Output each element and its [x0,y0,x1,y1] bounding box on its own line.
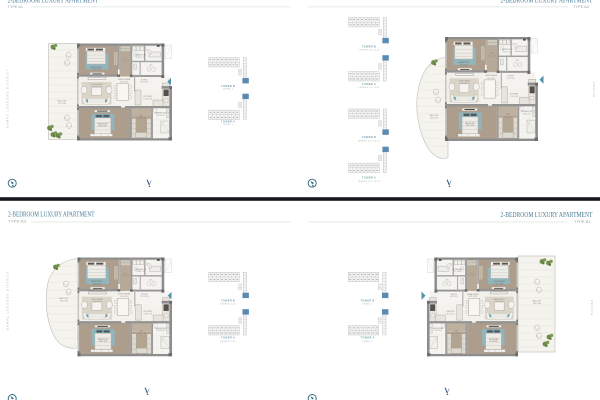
svg-text:2-BEDROOM LUXURY APARTMENT: 2-BEDROOM LUXURY APARTMENT [8,0,99,4]
svg-text:2-BEDROOM LUXURY APARTMENT: 2-BEDROOM LUXURY APARTMENT [501,0,593,4]
svg-text:2.76 X 9.80: 2.76 X 9.80 [58,103,66,105]
svg-text:TOWER B: TOWER B [221,298,235,302]
svg-text:BALCONY: BALCONY [59,297,69,300]
svg-text:TOWER B: TOWER B [362,44,376,48]
svg-text:TOWER A: TOWER A [221,119,235,123]
svg-text:TOWER A: TOWER A [362,176,376,180]
svg-text:TOWER B: TOWER B [360,298,374,302]
svg-text:LEVELS 2-13: LEVELS 2-13 [220,304,236,306]
svg-text:LEVELS 2-5, 8-11: LEVELS 2-5, 8-11 [359,50,380,52]
svg-text:TYPE B1: TYPE B1 [574,220,591,224]
svg-text:LEVELS 6-7, 12-13: LEVELS 6-7, 12-13 [358,181,381,183]
svg-text:2.86 X 8.23: 2.86 X 8.23 [430,117,438,119]
svg-text:DAMAC LAGOONS DISTRICT: DAMAC LAGOONS DISTRICT [6,68,10,128]
svg-text:LEVEL 1: LEVEL 1 [363,341,374,343]
svg-text:LEVELS 2-5, 8-11: LEVELS 2-5, 8-11 [359,87,380,89]
svg-text:TOWER A: TOWER A [362,82,376,86]
svg-text:2-BEDROOM LUXURY APARTMENT: 2-BEDROOM LUXURY APARTMENT [501,211,593,219]
svg-text:VENICE: VENICE [592,82,596,98]
svg-text:LEVEL 1: LEVEL 1 [223,124,234,126]
svg-text:BALCONY: BALCONY [57,100,67,103]
svg-text:TOWER B: TOWER B [362,135,376,139]
svg-text:BALCONY: BALCONY [532,300,542,303]
svg-text:TYPE A1: TYPE A1 [8,5,24,9]
svg-text:BALCONY: BALCONY [429,114,439,117]
svg-text:TOWER A: TOWER A [221,336,235,340]
svg-text:LEVELS 2-13: LEVELS 2-13 [220,341,236,343]
svg-text:TOWER A: TOWER A [360,336,374,340]
svg-text:2.86 X 9.80: 2.86 X 9.80 [533,303,541,305]
svg-text:TYPE A2: TYPE A2 [573,5,589,9]
svg-text:LEVEL 1: LEVEL 1 [363,304,374,306]
svg-text:2.86 X 8.23: 2.86 X 8.23 [60,300,68,302]
svg-text:2-BEDROOM LUXURY APARTMENT: 2-BEDROOM LUXURY APARTMENT [8,211,95,219]
svg-text:DAMAC LAGOONS DISTRICT: DAMAC LAGOONS DISTRICT [6,270,10,330]
svg-text:VENICE: VENICE [590,300,594,316]
svg-text:LEVEL 1: LEVEL 1 [223,89,234,91]
svg-text:TYPE A3: TYPE A3 [8,220,26,224]
svg-text:LEVELS 6-7, 12-13: LEVELS 6-7, 12-13 [358,141,381,143]
svg-text:TOWER B: TOWER B [221,84,235,88]
